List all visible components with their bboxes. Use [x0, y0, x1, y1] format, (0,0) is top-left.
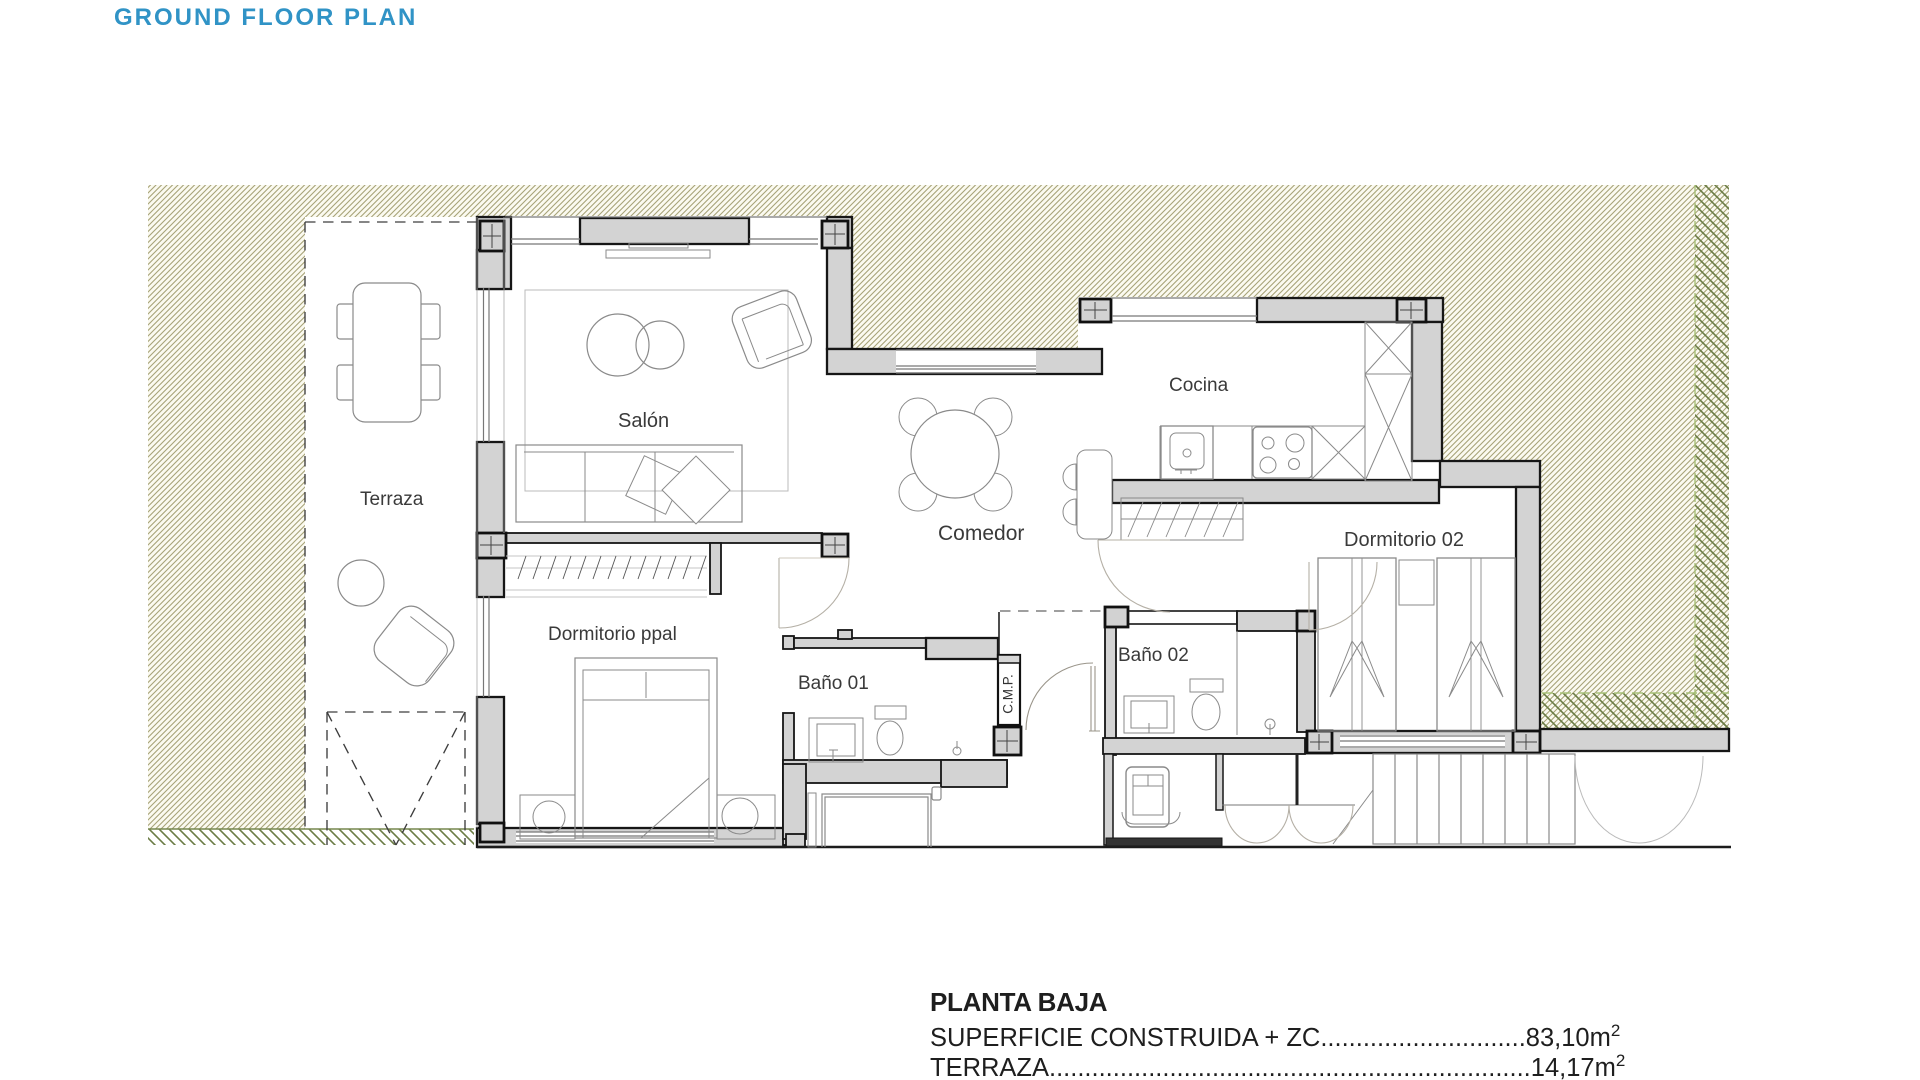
svg-text:SUPERFICIE CONSTRUIDA + ZC....: SUPERFICIE CONSTRUIDA + ZC..............…: [930, 1021, 1620, 1052]
svg-text:Terraza: Terraza: [360, 489, 424, 510]
svg-text:Dormitorio ppal: Dormitorio ppal: [548, 624, 677, 645]
svg-text:Baño 01: Baño 01: [798, 673, 869, 694]
svg-text:Baño 02: Baño 02: [1118, 645, 1189, 666]
svg-text:C.M.P.: C.M.P.: [1001, 674, 1016, 714]
svg-text:Comedor: Comedor: [938, 522, 1024, 545]
svg-text:TERRAZA.......................: TERRAZA.................................…: [930, 1051, 1625, 1080]
svg-text:Dormitorio 02: Dormitorio 02: [1344, 529, 1464, 551]
svg-text:Cocina: Cocina: [1169, 375, 1229, 396]
svg-text:GROUND FLOOR PLAN: GROUND FLOOR PLAN: [114, 4, 417, 31]
svg-text:PLANTA BAJA: PLANTA BAJA: [930, 987, 1108, 1017]
svg-text:Salón: Salón: [618, 410, 669, 432]
